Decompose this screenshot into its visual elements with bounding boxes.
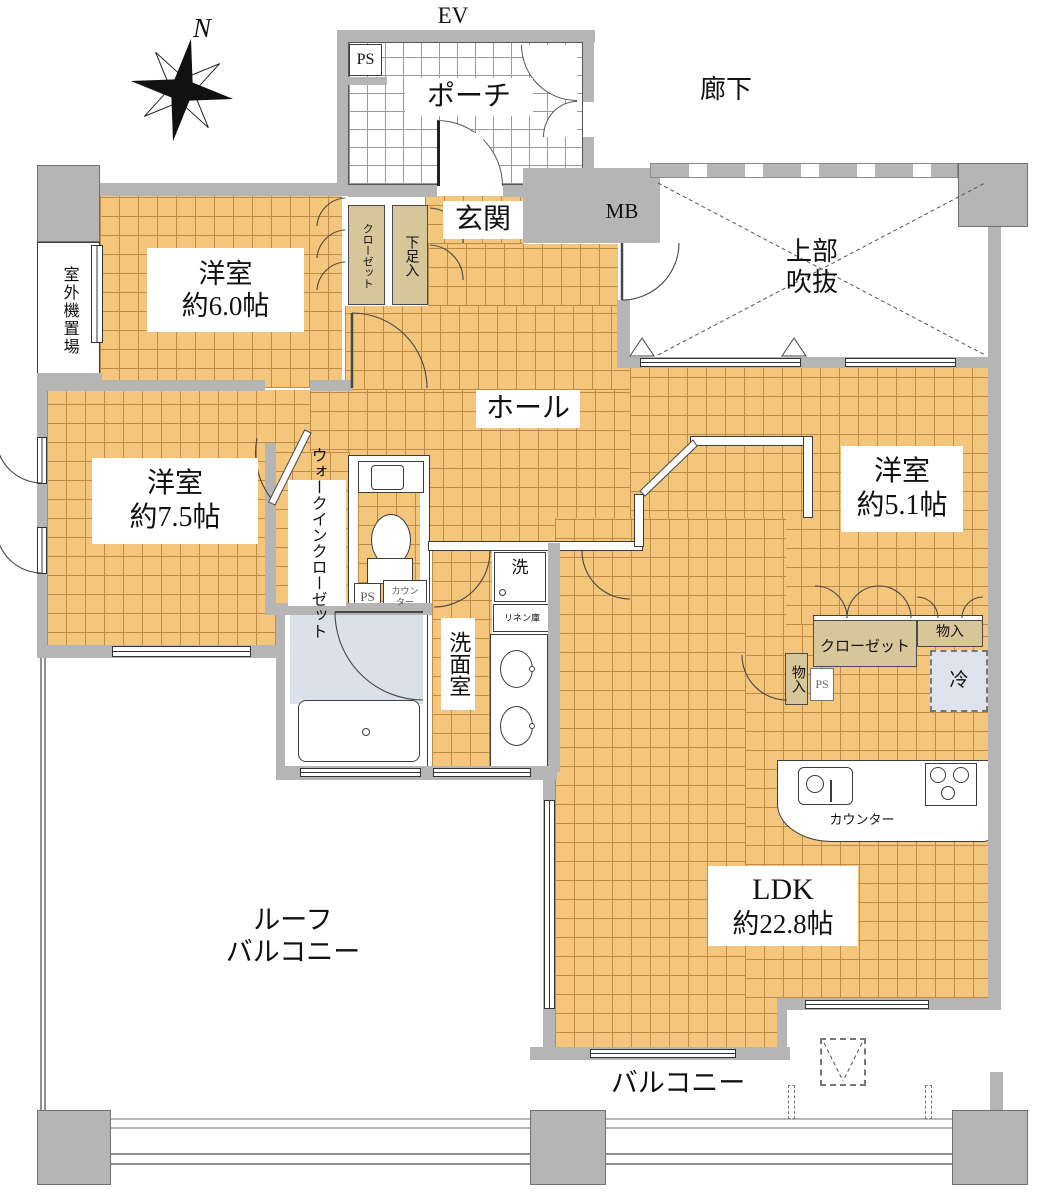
kitchen-ps-label: PS xyxy=(810,668,834,701)
north-label: N xyxy=(182,12,222,44)
evacuation-hatch xyxy=(820,1038,866,1086)
balcony-label: バルコニー xyxy=(606,1064,750,1102)
window xyxy=(300,768,421,777)
window xyxy=(544,800,555,1009)
kitchen-counter-label: カウンター xyxy=(820,810,904,830)
balcony-partition xyxy=(788,1085,795,1119)
wall xyxy=(777,1010,787,1053)
compass-icon xyxy=(131,39,233,141)
railing-line xyxy=(40,658,42,1110)
bedroom75-label: 洋室約7.5帖 xyxy=(92,458,258,544)
window xyxy=(37,437,47,484)
railing-line xyxy=(45,1127,1005,1129)
railing-line xyxy=(44,658,46,1110)
pillar-northeast xyxy=(958,163,1028,227)
porch-label: ポーチ xyxy=(405,78,533,116)
pillar-northwest xyxy=(37,165,100,242)
stove-burner-2 xyxy=(953,767,969,783)
fridge-label: 冷 xyxy=(930,650,988,712)
railing-line xyxy=(45,1118,1005,1120)
shoe-box-label: 下足入 xyxy=(396,212,424,300)
window xyxy=(640,358,801,367)
hall-label: ホール xyxy=(476,390,580,428)
window xyxy=(845,358,956,367)
washer-tap xyxy=(499,589,506,596)
vanity-tap-2 xyxy=(529,723,535,729)
wall xyxy=(348,185,437,197)
roof-balcony-label: ルーフバルコニー xyxy=(218,896,368,976)
bedroom51-label: 洋室約5.1帖 xyxy=(841,446,963,532)
ldk-label: LDK約22.8帖 xyxy=(708,866,858,946)
toilet-counter-label: カウンター xyxy=(383,580,427,613)
bathtub xyxy=(298,700,420,762)
wall xyxy=(617,300,630,368)
closet-bedroom6-label: クローゼット xyxy=(352,210,381,302)
linen-label: リネン庫 xyxy=(493,608,551,628)
window xyxy=(590,1049,736,1058)
corridor-label: 廊下 xyxy=(686,72,766,108)
window xyxy=(91,245,103,343)
wall xyxy=(265,443,276,612)
void-label: 上部吹抜 xyxy=(776,234,848,300)
washer-label: 洗 xyxy=(500,556,540,580)
vanity-tap-1 xyxy=(529,666,535,672)
toilet-ps-label: PS xyxy=(354,583,381,611)
sliding-track-v1 xyxy=(803,436,813,518)
wall xyxy=(47,380,265,391)
wall xyxy=(990,1072,1003,1110)
wall xyxy=(337,30,595,42)
window xyxy=(433,768,531,777)
wall-right xyxy=(988,227,1001,1010)
wall-left xyxy=(37,378,47,658)
bedroom6-label: 洋室約6.0帖 xyxy=(147,248,304,332)
wall xyxy=(310,380,352,391)
bathtub-drain xyxy=(362,728,370,736)
toilet-sink xyxy=(371,465,404,490)
genkan-label: 玄関 xyxy=(443,201,523,239)
sliding-track-h xyxy=(690,436,805,446)
pillar-south-center xyxy=(530,1110,606,1185)
wall xyxy=(548,543,560,772)
window xyxy=(805,1000,929,1009)
pillar-southwest xyxy=(37,1110,111,1185)
kitchen-faucet xyxy=(830,780,832,802)
railing-line xyxy=(45,1153,1005,1155)
kitchen-sink-drain xyxy=(806,775,824,793)
storage-h-label: 物入 xyxy=(919,621,981,646)
closet-bedroom51-label: クローゼット xyxy=(815,630,915,664)
balcony-partition xyxy=(925,1085,932,1119)
wall xyxy=(276,612,285,770)
floor-plan: EV PS ポーチ 廊下 N 玄関 MB 上部吹抜 室外機置場 洋室約6.0帖 … xyxy=(0,0,1039,1200)
wall xyxy=(337,42,348,188)
floor-hall-mid xyxy=(345,306,630,390)
wall xyxy=(100,183,348,196)
ev-label: EV xyxy=(424,2,482,30)
wic-label: ウォークインクローゼット xyxy=(288,480,346,606)
ps-label-top: PS xyxy=(349,44,382,76)
pillar-southeast xyxy=(952,1110,1028,1185)
window xyxy=(112,646,251,657)
floor-genkan-lower xyxy=(428,244,618,306)
stove-burner-3 xyxy=(941,786,955,800)
window xyxy=(37,527,47,574)
mb-label: MB xyxy=(592,186,652,238)
outdoor-unit-label: 室外機置場 xyxy=(52,250,86,372)
sliding-track-v2 xyxy=(634,494,644,547)
railing-line xyxy=(45,1163,1005,1165)
wall xyxy=(503,185,523,197)
corridor-louver-band xyxy=(650,163,958,178)
stove-burner-1 xyxy=(930,767,946,783)
washroom-top-wall xyxy=(428,541,643,551)
wall xyxy=(583,42,594,102)
storage-v-label: 物入 xyxy=(786,655,807,703)
wall xyxy=(348,77,387,85)
washroom-label: 洗面室 xyxy=(441,618,475,710)
